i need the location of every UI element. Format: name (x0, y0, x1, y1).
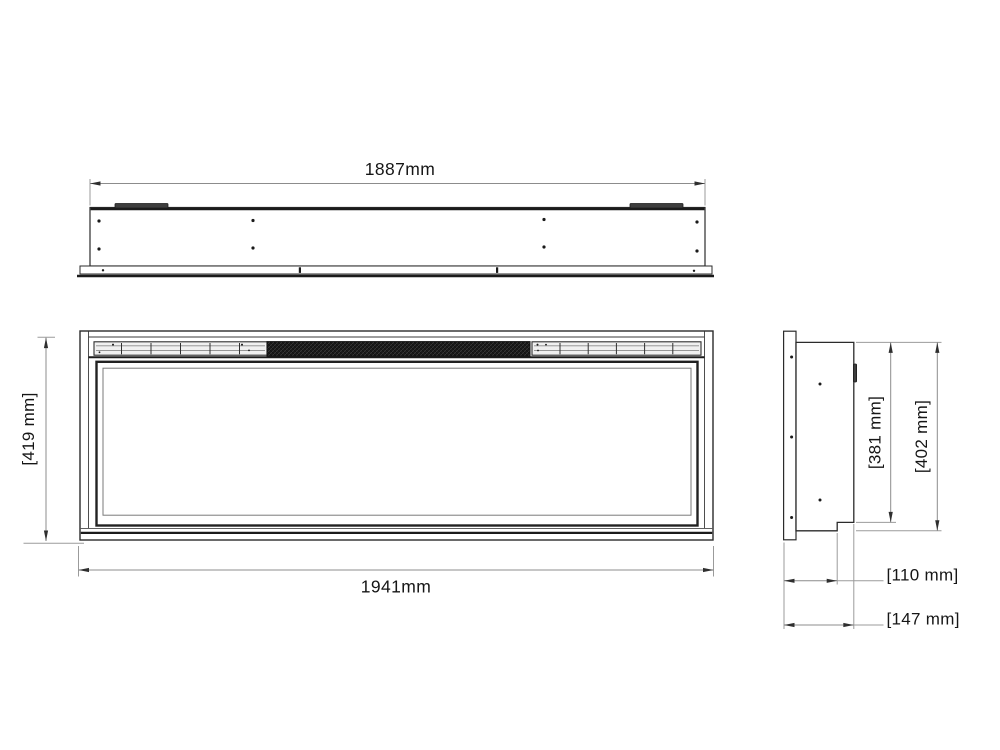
front-height-dimension: [419 mm] (19, 337, 84, 543)
side-inner-height-dimension-label: [381 mm] (866, 396, 885, 469)
top-width-dimension-label: 1887mm (365, 159, 436, 179)
side-inner-depth-dimension-label: [110 mm] (887, 565, 959, 584)
arrow-left-icon (784, 623, 795, 627)
mounting-tab-right (630, 204, 683, 209)
mounting-tab-left (115, 204, 168, 209)
top-view-front-flange (77, 266, 714, 276)
side-overall-depth-dimension: [147 mm] (784, 610, 960, 629)
top-view-body (90, 204, 705, 267)
side-overall-height-dimension-label: [402 mm] (912, 400, 931, 473)
vent-grille-right (532, 342, 701, 355)
side-inner-depth-dimension: [110 mm] (784, 565, 959, 584)
front-width-dimension-label: 1941mm (361, 577, 432, 597)
top-width-dimension: 1887mm (90, 159, 705, 206)
side-view: [381 mm] [402 mm] [110 mm] [147 mm] (784, 331, 960, 629)
arrow-down-icon (44, 531, 48, 542)
side-overall-height-dimension: [402 mm] (912, 342, 939, 530)
side-inner-height-dimension: [381 mm] (866, 342, 893, 522)
side-body (790, 342, 857, 530)
arrow-up-icon (889, 342, 893, 353)
side-front-flange (784, 331, 796, 540)
vent-mesh (267, 342, 530, 357)
front-view: [419 mm] 1941mm (19, 331, 714, 597)
front-width-dimension: 1941mm (79, 546, 714, 597)
firebox-window (97, 362, 698, 526)
arrow-down-icon (935, 520, 939, 531)
arrow-left-icon (784, 579, 795, 583)
arrow-right-icon (695, 181, 706, 185)
drawing-canvas: 1887mm (0, 0, 1000, 750)
arrow-right-icon (843, 623, 854, 627)
side-overall-depth-dimension-label: [147 mm] (887, 610, 960, 629)
side-mounting-bracket (853, 364, 856, 382)
top-view: 1887mm (77, 159, 714, 276)
arrow-up-icon (44, 338, 48, 349)
arrow-up-icon (935, 342, 939, 353)
arrow-right-icon (827, 579, 838, 583)
arrow-left-icon (90, 181, 101, 185)
arrow-right-icon (703, 568, 714, 572)
arrow-down-icon (889, 512, 893, 523)
vent-grille-left (94, 342, 267, 355)
front-height-dimension-label: [419 mm] (19, 392, 38, 465)
arrow-left-icon (79, 568, 90, 572)
